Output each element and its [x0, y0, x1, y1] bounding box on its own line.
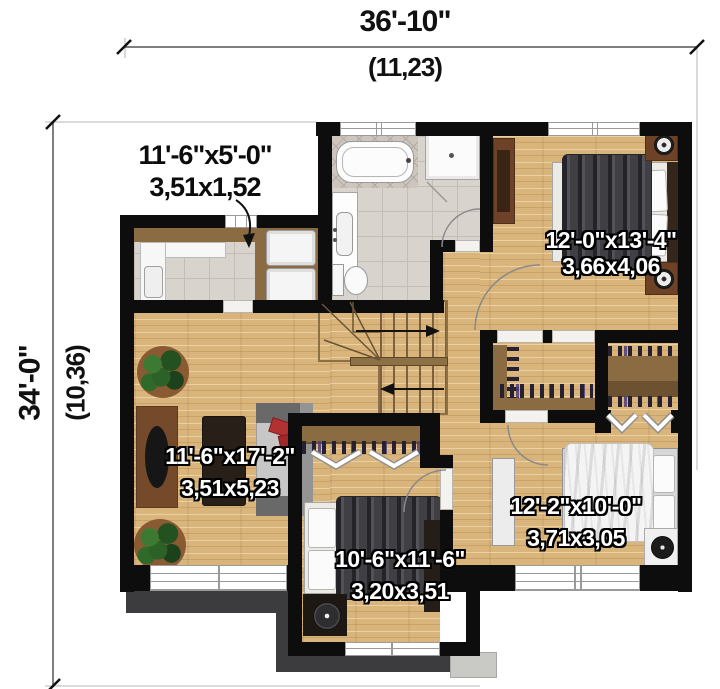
wall: [318, 122, 332, 313]
sink-faucet: [333, 228, 337, 232]
sink: [336, 212, 353, 256]
dimension-height-metric: (10,36): [62, 345, 89, 420]
plant-icon: [137, 346, 189, 398]
laundry-sink: [144, 266, 163, 298]
bathtub: [336, 141, 414, 183]
wall: [480, 122, 493, 252]
dimension-width-metric: (11,23): [368, 54, 442, 81]
wall: [120, 215, 134, 592]
shower-drain: [449, 153, 454, 158]
window: [340, 122, 416, 136]
wall: [678, 122, 692, 592]
sink-faucet-2: [333, 238, 337, 242]
dryer: [266, 268, 316, 304]
window: [515, 565, 640, 591]
door-threshold-bedroom-br: [505, 410, 548, 423]
pillow: [653, 455, 675, 493]
wall: [120, 215, 225, 228]
wall: [440, 455, 453, 468]
room-size-imperial: 10'-6"x11'-6": [335, 544, 465, 576]
toilet-tank: [332, 264, 344, 296]
wall: [288, 642, 345, 656]
wall: [466, 565, 480, 656]
door-threshold-walkin: [552, 330, 595, 343]
tub-faucet: [406, 158, 411, 163]
wall: [480, 410, 505, 423]
dresser-top-right-inset: [497, 150, 510, 212]
room-label-laundry: 11'-6"x5'-0" 3,51x1,52: [138, 140, 271, 204]
porch-roof-left: [126, 591, 300, 613]
closet-right-shelf-bottom: [608, 381, 678, 397]
wood-floor-hall: [443, 252, 480, 302]
door-threshold-bathroom: [455, 240, 480, 252]
closet-right-clothes-bottom: [608, 396, 678, 407]
wall: [120, 565, 150, 591]
floor-plan: 36'-10" (11,23) 34'-0" (10,36) 11'-6"x5'…: [0, 0, 720, 689]
wall: [595, 410, 611, 433]
wall: [288, 413, 440, 426]
lamp-icon: [654, 135, 674, 155]
toilet-bowl: [344, 266, 368, 295]
stair-stringer: [350, 357, 448, 366]
wall: [318, 300, 444, 313]
wall: [640, 565, 692, 591]
room-size-metric: 3,51x5,23: [165, 473, 295, 505]
dimension-tick: [117, 40, 131, 54]
wall: [671, 410, 692, 433]
closet-right-shelf-top: [608, 356, 678, 382]
dimension-tick: [46, 115, 60, 129]
hanging-clothes-middle: [302, 441, 420, 454]
pillow: [308, 508, 336, 548]
dimension-tick: [46, 679, 60, 689]
window: [150, 565, 287, 591]
room-label-bedroom-bottom-right: 12'-2"x10'-0" 3,71x3,05: [510, 491, 641, 554]
door-threshold-laundry: [223, 300, 253, 313]
wall: [420, 413, 440, 468]
wall: [595, 330, 692, 343]
window: [225, 215, 257, 228]
room-size-metric: 3,20x3,51: [335, 576, 465, 608]
wall: [430, 240, 455, 252]
stair-rail-lower: [378, 362, 448, 415]
walkin-clothes-bottom: [500, 384, 593, 399]
lamp-icon: [651, 536, 674, 559]
room-size-imperial: 11'-6"x17'-2": [165, 441, 295, 473]
dimension-tick: [690, 40, 704, 54]
room-label-living: 11'-6"x17'-2" 3,51x5,23: [165, 441, 295, 504]
room-size-metric: 3,51x1,52: [138, 172, 271, 204]
room-label-bedroom-top-right: 12'-0"x13'-4" 3,66x4,06: [545, 228, 676, 280]
washer: [266, 230, 316, 266]
room-size-imperial: 12'-0"x13'-4": [545, 228, 676, 254]
room-size-metric: 3,71x3,05: [510, 523, 641, 555]
room-size-imperial: 11'-6"x5'-0": [138, 140, 271, 172]
wall: [253, 300, 318, 313]
wall: [480, 330, 497, 343]
wall: [120, 300, 223, 313]
window: [345, 642, 440, 656]
dimension-width-imperial: 36'-10": [359, 6, 450, 38]
room-size-metric: 3,66x4,06: [545, 254, 676, 280]
pillow: [308, 550, 336, 590]
dimension-height-imperial: 34'-0": [14, 345, 46, 420]
room-label-bedroom-middle: 10'-6"x11'-6" 3,20x3,51: [335, 544, 465, 607]
bathtub-basin: [342, 147, 408, 177]
laundry-counter-back: [134, 227, 255, 242]
wall: [543, 330, 552, 343]
plant-icon-2: [134, 519, 186, 571]
door-threshold-bedroom: [497, 330, 543, 343]
door-threshold-bedroom-mid: [440, 468, 453, 510]
window: [548, 122, 640, 136]
room-size-imperial: 12'-2"x10'-0": [510, 491, 641, 523]
